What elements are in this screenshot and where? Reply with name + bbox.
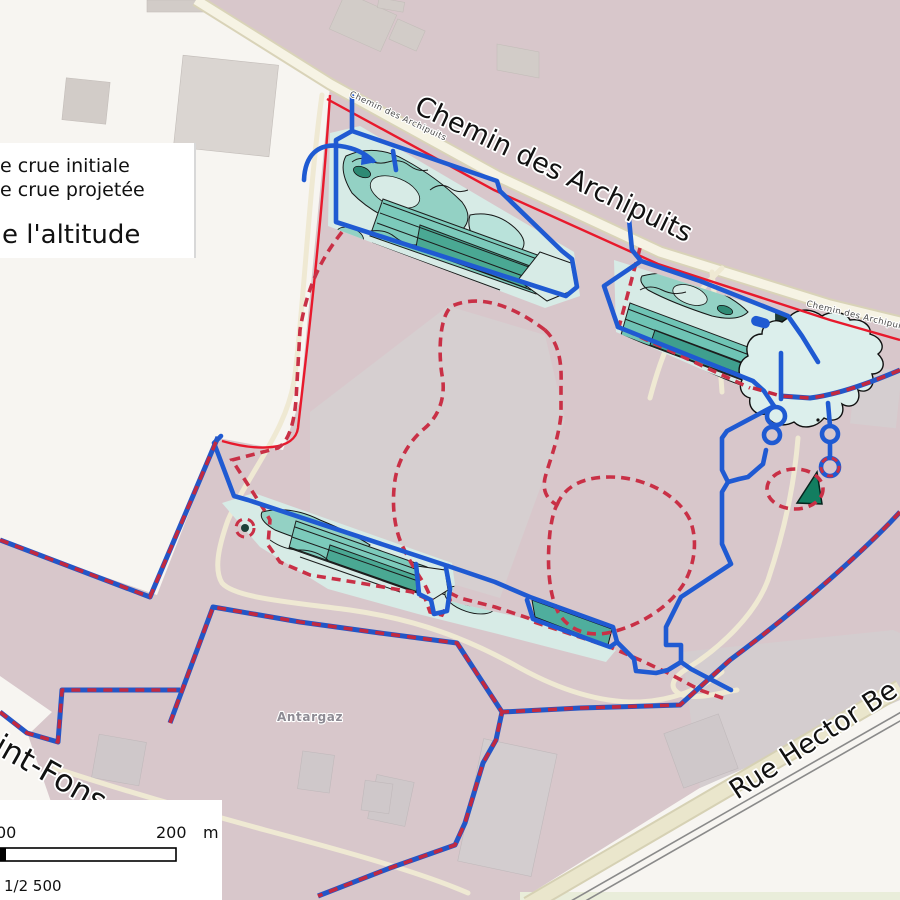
scalebar-left-label: 00 — [0, 823, 16, 842]
scalebar-bar-black-segment — [0, 848, 6, 861]
legend: de crue initiale de crue projetée e l'al… — [0, 143, 196, 258]
building — [92, 734, 147, 786]
legend-box-edge — [194, 143, 196, 258]
building — [361, 780, 393, 814]
scalebar-unit: m — [203, 823, 219, 842]
scalebar-bar — [0, 848, 176, 861]
scalebar-right-label: 200 — [156, 823, 187, 842]
map-canvas[interactable]: Chemin des Archipuits Chemin des Archipu… — [0, 0, 900, 900]
green-band-bottom — [520, 892, 900, 900]
legend-line-1: de crue initiale — [0, 155, 130, 177]
dark-dot — [241, 524, 249, 532]
blue-tick — [393, 151, 396, 170]
contour-dot — [816, 418, 819, 421]
map-svg: Chemin des Archipuits Chemin des Archipu… — [0, 0, 900, 900]
building — [62, 78, 110, 124]
legend-line-2: de crue projetée — [0, 179, 145, 201]
building — [298, 751, 335, 793]
poi-label-antargaz: Antargaz — [277, 710, 343, 724]
scalebar-ratio: 1/2 500 — [4, 877, 62, 895]
blue-donut-stem — [828, 403, 830, 426]
scalebar: 00 200 m 1/2 500 — [0, 800, 222, 900]
building — [173, 55, 278, 157]
legend-line-3: e l'altitude — [2, 220, 140, 250]
